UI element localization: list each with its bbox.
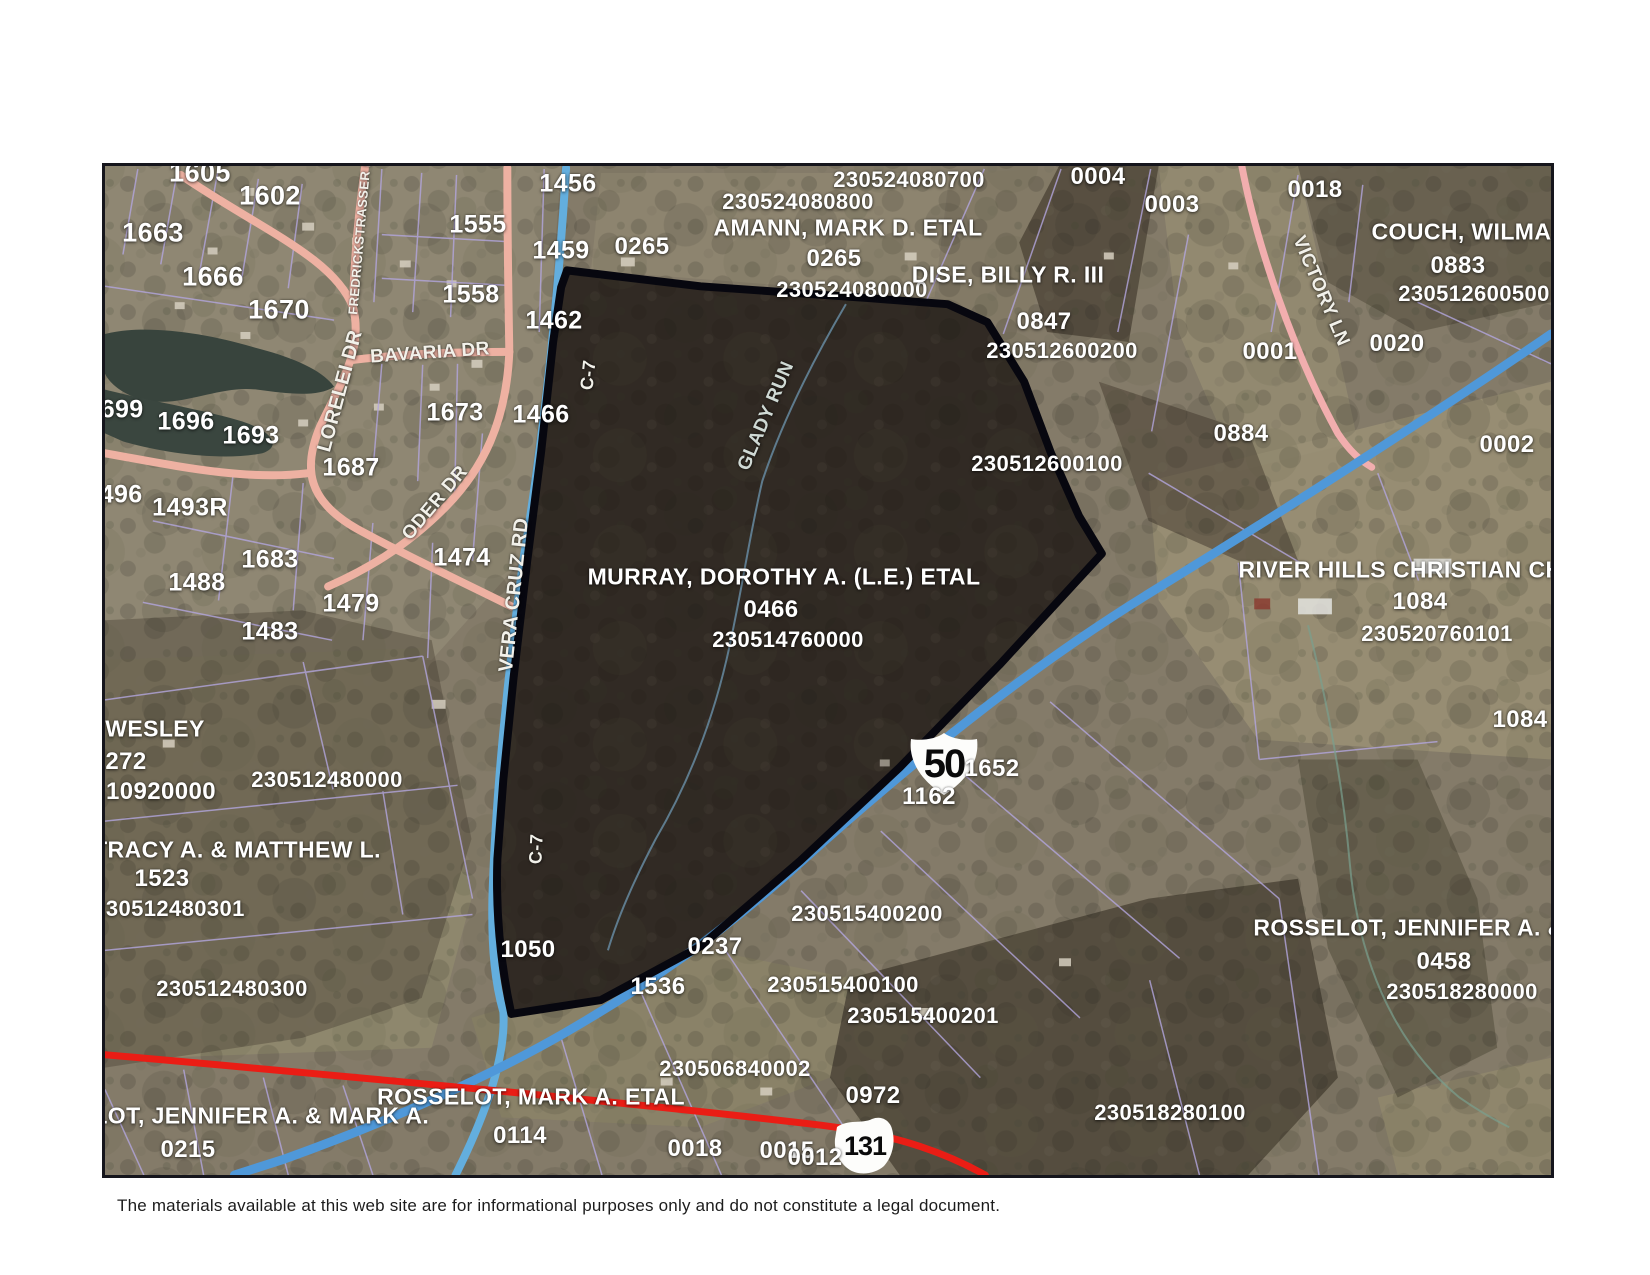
parcel-number-label: 272 xyxy=(105,750,146,774)
owner-name-label: WESLEY xyxy=(105,718,205,741)
parcel-number-label: 0884 xyxy=(1214,422,1269,446)
parcel-id-label: 230524080000 xyxy=(776,279,928,301)
parcel-number-label: 1479 xyxy=(322,592,379,617)
owner-name-label: COUCH, WILMA J xyxy=(1372,221,1554,244)
parcel-number-label: 1602 xyxy=(239,183,301,210)
parcel-number-label: 1483 xyxy=(241,620,298,645)
parcel-id-label: 230514760000 xyxy=(712,629,864,651)
owner-name-label: ROSSELOT, JENNIFER A. & xyxy=(1253,917,1554,940)
parcel-number-label: 0001 xyxy=(1243,340,1298,364)
parcel-id-label: 230512480301 xyxy=(102,898,245,920)
parcel-number-label: 1456 xyxy=(539,172,596,197)
parcel-number-label: 0265 xyxy=(615,235,670,259)
parcel-number-label: 1050 xyxy=(501,938,556,962)
parcel-number-label: 1605 xyxy=(169,163,231,187)
parcel-number-label: 1488 xyxy=(168,571,225,596)
parcel-number-label: 1673 xyxy=(426,401,483,426)
parcel-number-label: 0847 xyxy=(1017,310,1072,334)
parcel-number-label: 1493R xyxy=(152,496,228,521)
parcel-number-label: 0020 xyxy=(1370,332,1425,356)
parcel-id-label: 230512600200 xyxy=(986,340,1138,362)
parcel-number-label: 1693 xyxy=(222,424,279,449)
parcel-id-label: 230520760101 xyxy=(1361,623,1513,645)
parcel-id-label: 230512600500 xyxy=(1398,283,1550,305)
gis-print-page: 50 131 160516021663166616701456155514591… xyxy=(0,0,1650,1275)
owner-name-label: DISE, BILLY R. III xyxy=(912,264,1105,287)
parcel-number-label: 1474 xyxy=(433,546,490,571)
parcel-number-label: 0004 xyxy=(1071,165,1126,189)
owner-name-label: RIVER HILLS CHRISTIAN CHU xyxy=(1239,559,1554,582)
parcel-number-label: 0012 xyxy=(788,1146,843,1170)
disclaimer-text: The materials available at this web site… xyxy=(117,1196,1000,1216)
parcel-number-label: 1462 xyxy=(525,309,582,334)
parcel-number-label: 1496 xyxy=(102,483,143,508)
parcel-number-label: 0466 xyxy=(744,598,799,622)
road-name-label: LORELEI DR xyxy=(314,328,366,454)
parcel-number-label: 0458 xyxy=(1417,950,1472,974)
parcel-number-label: 0972 xyxy=(846,1084,901,1108)
road-name-label: VICTORY LN xyxy=(1289,233,1352,349)
map-label-layer: 1605160216631666167014561555145915581462… xyxy=(105,166,1551,1175)
parcel-number-label: 1666 xyxy=(182,264,244,291)
parcel-number-label: 1162 xyxy=(902,785,956,809)
owner-name-label: MURRAY, DOROTHY A. (L.E.) ETAL xyxy=(588,566,981,589)
parcel-number-label: 1466 xyxy=(512,403,569,428)
parcel-number-label: 1663 xyxy=(122,220,184,247)
parcel-number-label: 1699 xyxy=(102,398,144,423)
parcel-number-label: 0237 xyxy=(688,935,743,959)
stream-name-label: GLADY RUN xyxy=(735,359,798,473)
parcel-number-label: 1555 xyxy=(449,213,506,238)
parcel-number-label: 0114 xyxy=(493,1124,547,1148)
parcel-id-label: 230512600100 xyxy=(971,453,1123,475)
parcel-id-label: 230506840002 xyxy=(659,1058,811,1080)
parcel-number-label: 1558 xyxy=(442,283,499,308)
road-name-label: ODER DR xyxy=(399,462,472,543)
parcel-number-label: 0002 xyxy=(1480,433,1535,457)
parcel-id-label: 230524080800 xyxy=(722,191,874,213)
parcel-number-label: 1536 xyxy=(631,975,686,999)
parcel-id-label: 230518280000 xyxy=(1386,981,1538,1003)
owner-name-label: ROSSELOT, JENNIFER A. & MARK A. xyxy=(102,1105,429,1128)
owner-name-label: TRACY A. & MATTHEW L. xyxy=(102,839,381,862)
parcel-number-label: 1683 xyxy=(241,548,298,573)
parcel-id-label: 230515400100 xyxy=(767,974,919,996)
parcel-id-label: 230515400201 xyxy=(847,1005,999,1027)
parcel-number-label: 1652 xyxy=(965,757,1020,781)
parcel-number-label: 0265 xyxy=(807,247,862,271)
parcel-number-label: 1696 xyxy=(157,410,214,435)
parcel-id-label: 230512480300 xyxy=(156,978,308,1000)
parcel-number-label: 1084 xyxy=(1493,708,1548,732)
parcel-id-label: 230518280100 xyxy=(1094,1102,1246,1124)
parcel-number-label: 1523 xyxy=(135,867,190,891)
parcel-number-label: 1459 xyxy=(532,239,589,264)
parcel-number-label: 1084 xyxy=(1393,590,1448,614)
parcel-number-label: 0215 xyxy=(161,1138,216,1162)
parcel-id-label: 230515400200 xyxy=(791,903,943,925)
map-viewport[interactable]: 50 131 160516021663166616701456155514591… xyxy=(102,163,1554,1178)
parcel-number-label: 1670 xyxy=(248,297,310,324)
road-name-label: BAVARIA DR xyxy=(370,339,491,366)
parcel-number-label: 0003 xyxy=(1145,193,1200,217)
road-name-label: FREDRICKSTRASSER DR xyxy=(346,163,374,315)
owner-name-label: AMANN, MARK D. ETAL xyxy=(713,217,982,240)
parcel-number-label: 10920000 xyxy=(106,780,216,804)
route-designation-label: C-7 xyxy=(526,833,546,864)
route-designation-label: C-7 xyxy=(577,359,598,391)
parcel-number-label: 0883 xyxy=(1431,254,1486,278)
road-name-label: VERA CRUZ RD xyxy=(496,517,532,673)
parcel-id-label: 230524080700 xyxy=(833,169,985,191)
parcel-number-label: 0018 xyxy=(668,1137,723,1161)
parcel-number-label: 0018 xyxy=(1288,178,1343,202)
parcel-number-label: 1687 xyxy=(322,456,379,481)
parcel-id-label: 230512480000 xyxy=(251,769,403,791)
